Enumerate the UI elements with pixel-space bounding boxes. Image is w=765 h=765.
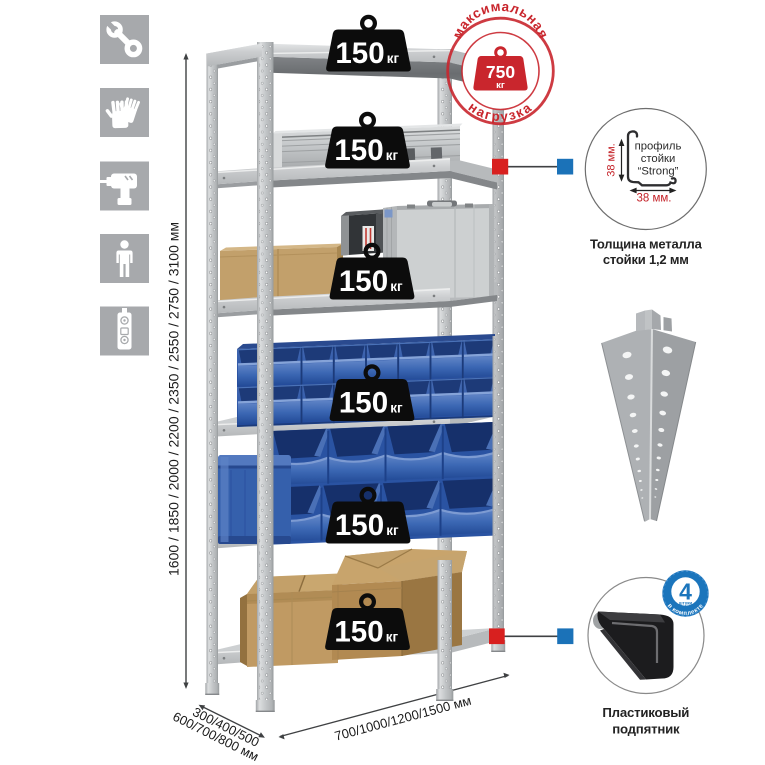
svg-text:1600 / 1850 / 2000 / 2200 / 23: 1600 / 1850 / 2000 / 2200 / 2350 / 2550 … — [166, 222, 182, 576]
svg-text:профиль: профиль — [635, 141, 682, 153]
svg-text:кг: кг — [496, 80, 505, 91]
svg-text:Пластиковый: Пластиковый — [602, 705, 689, 720]
svg-text:38 мм.: 38 мм. — [637, 193, 672, 205]
svg-text:стойки 1,2 мм: стойки 1,2 мм — [603, 252, 689, 267]
svg-text:штуки: штуки — [679, 601, 693, 606]
svg-text:подпятник: подпятник — [612, 722, 680, 737]
svg-text:стойки: стойки — [641, 153, 676, 165]
svg-text:750: 750 — [486, 62, 515, 82]
svg-text:“Strong”: “Strong” — [638, 166, 679, 178]
svg-text:Толщина металла: Толщина металла — [590, 237, 703, 252]
svg-text:38 мм.: 38 мм. — [606, 143, 618, 176]
